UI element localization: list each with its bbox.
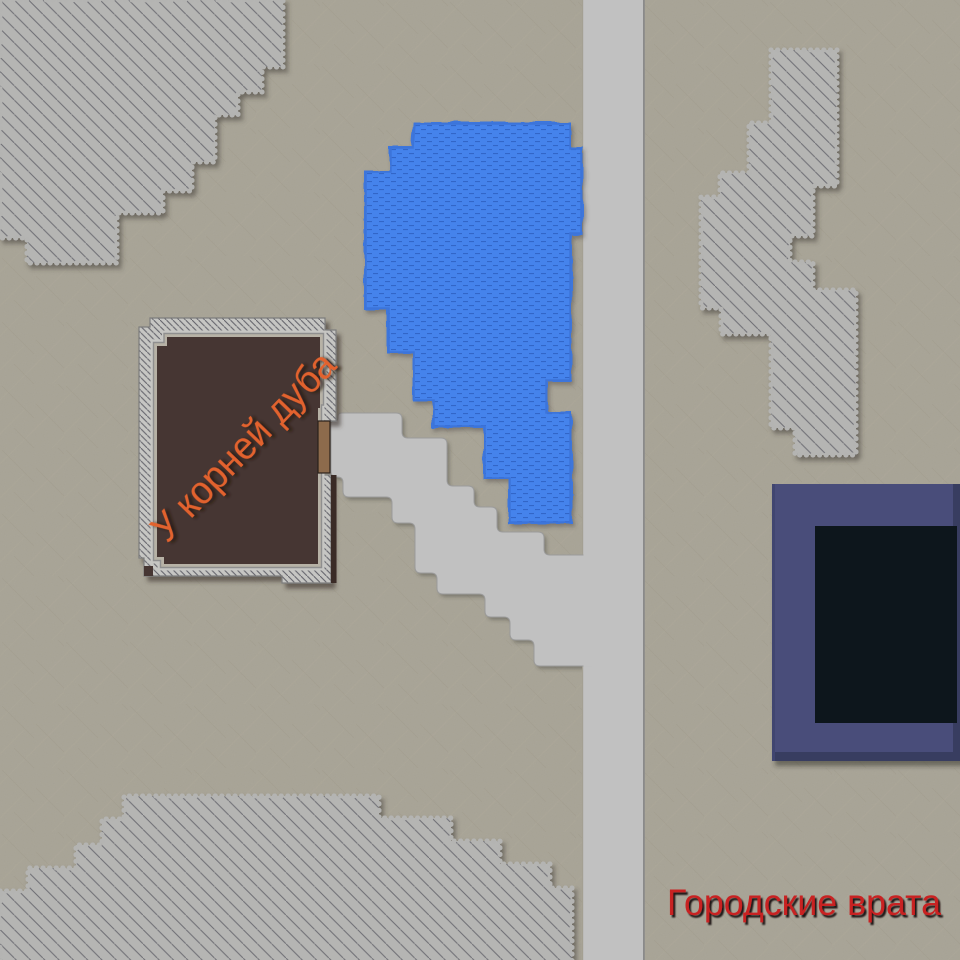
svg-text:Городские врата: Городские врата (667, 882, 941, 923)
